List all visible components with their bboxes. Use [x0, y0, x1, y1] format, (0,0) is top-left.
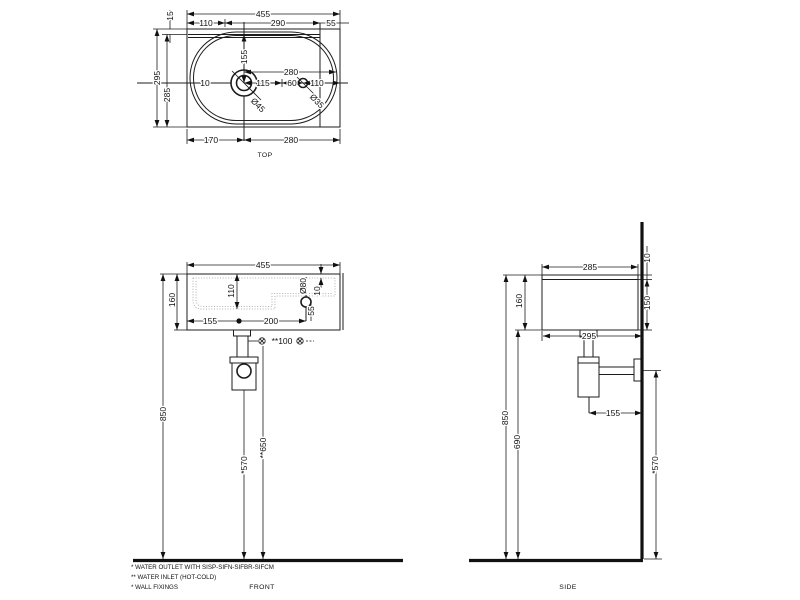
- dim-top-right-offset: 55: [326, 18, 336, 28]
- dim-top-rim-depth: 15: [165, 11, 175, 21]
- dim-top-drain-to-right: 280: [284, 135, 298, 145]
- inlet-hole-front: [301, 297, 311, 307]
- dim-top-drain-to-tap: 115: [256, 78, 270, 88]
- dim-top-tap-gap: 60: [287, 78, 297, 88]
- technical-drawing-sheet: 455 110 290 55 15 295 285 155 10 115 60 …: [0, 0, 800, 600]
- dim-side-height: 160: [514, 294, 524, 308]
- dim-top-drain-to-edge: 280: [284, 67, 298, 77]
- dim-side-underside-height: 690: [512, 435, 522, 449]
- dim-front-height: 160: [167, 293, 177, 307]
- note-water-inlet: ** WATER INLET (HOT-COLD): [131, 574, 216, 581]
- dim-front-inlet-height: **650: [258, 437, 268, 458]
- drawing-canvas: 455 110 290 55 15 295 285 155 10 115 60 …: [0, 0, 800, 600]
- dim-front-overall-width: 455: [256, 260, 270, 270]
- dim-front-inlet-spacing: **100: [272, 336, 293, 346]
- dim-front-rim-height: 850: [158, 407, 168, 421]
- dim-front-outlet-height: *570: [239, 456, 249, 474]
- dim-top-back-offset: 110: [199, 18, 213, 28]
- dim-top-overall-depth: 295: [152, 71, 162, 85]
- dim-front-drain-to-tap: 200: [264, 316, 278, 326]
- side-view-linework: [542, 275, 641, 413]
- top-view: 455 110 290 55 15 295 285 155 10 115 60 …: [137, 9, 349, 159]
- side-view: 285 10 150 160 295 155 850 690 *570 SIDE: [469, 222, 662, 591]
- dim-top-tap-to-edge: 110: [310, 78, 324, 88]
- dim-top-side-gap: 10: [200, 78, 210, 88]
- dim-front-bowl-depth: 110: [226, 284, 236, 298]
- dim-top-drain-from-left: 170: [204, 135, 218, 145]
- top-view-label: TOP: [257, 152, 272, 159]
- dim-front-hole-to-deck: 55: [306, 306, 316, 316]
- note-water-outlet: * WATER OUTLET WITH SISP-SIFN-SIFBR-SIFC…: [131, 564, 274, 571]
- dim-top-drain-dia: Ø45: [249, 96, 268, 115]
- dim-side-depth: 285: [583, 262, 597, 272]
- side-view-label: SIDE: [559, 584, 577, 591]
- front-view: 160 455 110 155 200 Ø80 55 10 **100 850 …: [133, 260, 403, 591]
- dim-side-total-depth: 295: [582, 331, 596, 341]
- dim-front-rim-thickness: 10: [312, 286, 322, 296]
- dim-side-rim-height: 850: [500, 411, 510, 425]
- basin-side-outline: [542, 275, 638, 330]
- note-wall-fixings: * WALL FIXINGS: [131, 584, 178, 591]
- wall-flange: [634, 359, 641, 381]
- dim-front-drain-from-left: 155: [203, 316, 217, 326]
- dim-top-overall-width: 455: [256, 9, 270, 19]
- dim-side-outlet-height: *570: [650, 456, 660, 474]
- dim-front-hole-dia: Ø80: [298, 278, 308, 294]
- dim-top-inner-depth: 285: [162, 88, 172, 102]
- trap-cap: [230, 357, 258, 363]
- drain-center-mark: [236, 318, 241, 323]
- trap-circle: [237, 364, 251, 378]
- waste-nut: [234, 330, 251, 336]
- dim-top-center-span: 290: [271, 18, 285, 28]
- dim-top-drain-from-back: 155: [239, 50, 249, 64]
- front-view-label: FRONT: [249, 584, 274, 591]
- dim-top-tap-dia: Ø35: [308, 92, 327, 111]
- dim-side-trap-to-wall: 155: [606, 408, 620, 418]
